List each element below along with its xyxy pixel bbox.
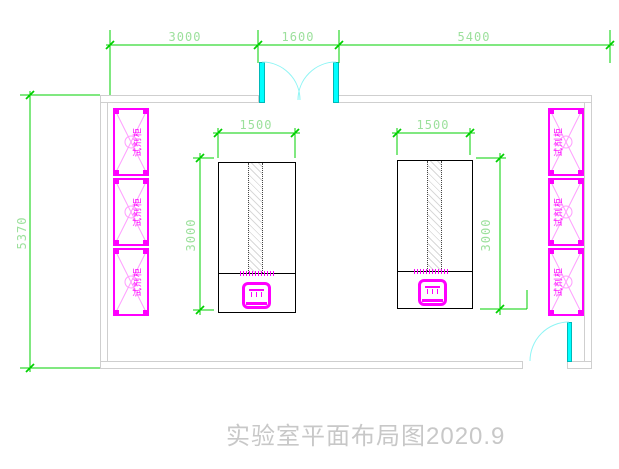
wall-top-left-segment: [100, 95, 259, 103]
cabinet-corner: [143, 240, 149, 246]
dim-top-middle: 1600: [268, 30, 328, 44]
cabinet-corner: [578, 170, 584, 176]
dimension-and-door-linework: [0, 0, 619, 469]
cabinet-corner: [113, 248, 119, 254]
cabinet-corner: [578, 310, 584, 316]
dim-right-bench-width: 1500: [403, 118, 463, 132]
dim-right-bench-depth: 3000: [479, 210, 493, 260]
cabinet-label: 试剂柜: [554, 182, 565, 242]
wall-right: [584, 95, 592, 368]
cabinet-label: 试剂柜: [133, 112, 144, 172]
floor-plan-canvas: 试剂柜 试剂柜 试剂柜 试剂柜 试剂柜: [0, 0, 619, 469]
faucet-drips-icon: [427, 289, 438, 294]
reagent-cabinet-left-3: 试剂柜: [113, 248, 149, 316]
cabinet-corner: [578, 248, 584, 254]
faucet-icon: [425, 286, 440, 288]
cabinet-corner: [113, 240, 119, 246]
lab-bench-right: [397, 160, 473, 309]
dim-top-right: 5400: [444, 30, 504, 44]
cabinet-corner: [113, 310, 119, 316]
wall-top-right-segment: [338, 95, 592, 103]
cabinet-corner: [113, 178, 119, 184]
reagent-cabinet-right-3: 试剂柜: [548, 248, 584, 316]
lab-bench-left: [218, 162, 296, 313]
reagent-cabinet-right-1: 试剂柜: [548, 108, 584, 176]
sink-hatch-band: [240, 271, 274, 276]
single-door-leaf: [567, 322, 572, 362]
reagent-cabinet-left-2: 试剂柜: [113, 178, 149, 246]
double-door-left-leaf: [259, 62, 265, 103]
cabinet-label: 试剂柜: [133, 252, 144, 312]
cabinet-label: 试剂柜: [133, 182, 144, 242]
cabinet-corner: [578, 178, 584, 184]
sink-symbol: [242, 282, 271, 309]
cabinet-corner: [143, 248, 149, 254]
dim-left-bench-width: 1500: [226, 118, 286, 132]
sink-symbol: [418, 279, 447, 306]
sink-hatch-band: [414, 269, 448, 274]
dim-left-overall: 5370: [15, 207, 29, 259]
reagent-cabinet-left-1: 试剂柜: [113, 108, 149, 176]
cabinet-corner: [578, 240, 584, 246]
bench-service-strip: [248, 163, 263, 273]
cabinet-corner: [113, 170, 119, 176]
cabinet-corner: [143, 178, 149, 184]
cabinet-label: 试剂柜: [554, 252, 565, 312]
cabinet-label: 试剂柜: [554, 112, 565, 172]
cabinet-corner: [578, 108, 584, 114]
dim-top-left: 3000: [155, 30, 215, 44]
reagent-cabinet-right-2: 试剂柜: [548, 178, 584, 246]
cabinet-corner: [143, 170, 149, 176]
drawing-title: 实验室平面布局图2020.9: [226, 416, 466, 451]
wall-bottom-right-segment: [567, 361, 592, 369]
bench-service-strip: [427, 161, 442, 271]
cabinet-corner: [143, 310, 149, 316]
faucet-drips-icon: [251, 292, 262, 297]
sink-base: [246, 302, 267, 305]
sink-base: [422, 299, 443, 302]
double-door-right-leaf: [333, 62, 339, 103]
faucet-icon: [249, 289, 264, 291]
wall-left: [100, 95, 108, 368]
wall-bottom-left-segment: [100, 361, 523, 369]
cabinet-corner: [143, 108, 149, 114]
cabinet-corner: [113, 108, 119, 114]
dim-left-bench-depth: 3000: [184, 210, 198, 260]
